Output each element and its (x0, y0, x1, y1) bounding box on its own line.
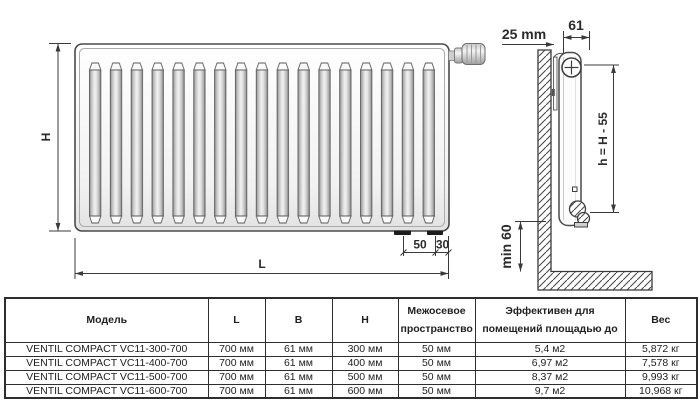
cell-effective-area: 8,37 м2 (475, 370, 625, 384)
cell-model: VENTIL COMPACT VC11-600-700 (5, 384, 208, 398)
bottom-connection-left (394, 231, 411, 236)
cell-axis-spacing: 50 мм (398, 342, 475, 356)
cell-model: VENTIL COMPACT VC11-500-700 (5, 370, 208, 384)
radiator-side-profile (559, 53, 581, 226)
cell-effective-area: 5,4 м2 (475, 342, 625, 356)
table-row: VENTIL COMPACT VC11-300-700 700 мм 61 мм… (5, 342, 697, 356)
cell-weight: 5,872 кг (625, 342, 697, 356)
col-header-length: L (208, 298, 265, 342)
cell-length: 700 мм (208, 356, 265, 370)
cell-height: 300 мм (332, 342, 398, 356)
col-header-model: Модель (5, 298, 208, 342)
cell-height: 400 мм (332, 356, 398, 370)
cell-model: VENTIL COMPACT VC11-400-700 (5, 356, 208, 370)
thermostatic-valve (449, 44, 486, 65)
radiator-side-view: 25 mm 61 h = H - 55 min 60 (498, 17, 652, 290)
air-vent (562, 58, 581, 77)
cell-axis-spacing: 50 мм (398, 356, 475, 370)
table-header-row: Модель L B H Межосевое пространство Эффе… (5, 298, 697, 342)
col-header-effective-area: Эффективен для помещений площадью до (475, 298, 625, 342)
technical-drawing: H 50 30 L (0, 0, 700, 297)
col-header-depth: B (265, 298, 332, 342)
dim-offset-50-label: 50 (413, 238, 427, 252)
dim-depth-label: 61 (568, 17, 584, 33)
cell-height: 600 мм (332, 384, 398, 398)
cell-axis-spacing: 50 мм (398, 384, 475, 398)
table-row: VENTIL COMPACT VC11-500-700 700 мм 61 мм… (5, 370, 697, 384)
cell-weight: 7,578 кг (625, 356, 697, 370)
cell-depth: 61 мм (265, 384, 332, 398)
dim-offset-30-label: 30 (436, 238, 450, 252)
radiator-front-view: H 50 30 L (39, 44, 485, 280)
col-header-weight: Вес (625, 298, 697, 342)
dim-height-label: H (39, 133, 53, 142)
dim-axis-height-label: h = H - 55 (596, 112, 610, 166)
table-row: VENTIL COMPACT VC11-600-700 700 мм 61 мм… (5, 384, 697, 398)
cell-effective-area: 6,97 м2 (475, 356, 625, 370)
cell-depth: 61 мм (265, 370, 332, 384)
side-fixing-hole (573, 187, 578, 192)
cell-length: 700 мм (208, 384, 265, 398)
col-header-axis-spacing: Межосевое пространство (398, 298, 475, 342)
spec-table: Модель L B H Межосевое пространство Эффе… (4, 297, 698, 399)
table-row: VENTIL COMPACT VC11-400-700 700 мм 61 мм… (5, 356, 697, 370)
dim-floor-clearance-label: min 60 (498, 224, 514, 269)
cell-depth: 61 мм (265, 342, 332, 356)
cell-length: 700 мм (208, 342, 265, 356)
cell-length: 700 мм (208, 370, 265, 384)
cell-height: 500 мм (332, 370, 398, 384)
bottom-connection-right (427, 231, 443, 236)
radiator-fins (87, 60, 441, 226)
cell-effective-area: 9,7 м2 (475, 384, 625, 398)
dim-depth (564, 31, 590, 53)
cell-depth: 61 мм (265, 356, 332, 370)
cell-axis-spacing: 50 мм (398, 370, 475, 384)
radiator-datasheet: H 50 30 L (0, 0, 700, 403)
cell-model: VENTIL COMPACT VC11-300-700 (5, 342, 208, 356)
cell-weight: 9,993 кг (625, 370, 697, 384)
col-header-height: H (332, 298, 398, 342)
dim-length-label: L (258, 257, 265, 271)
cell-weight: 10,968 кг (625, 384, 697, 398)
dim-wall-gap-label: 25 mm (502, 26, 546, 42)
